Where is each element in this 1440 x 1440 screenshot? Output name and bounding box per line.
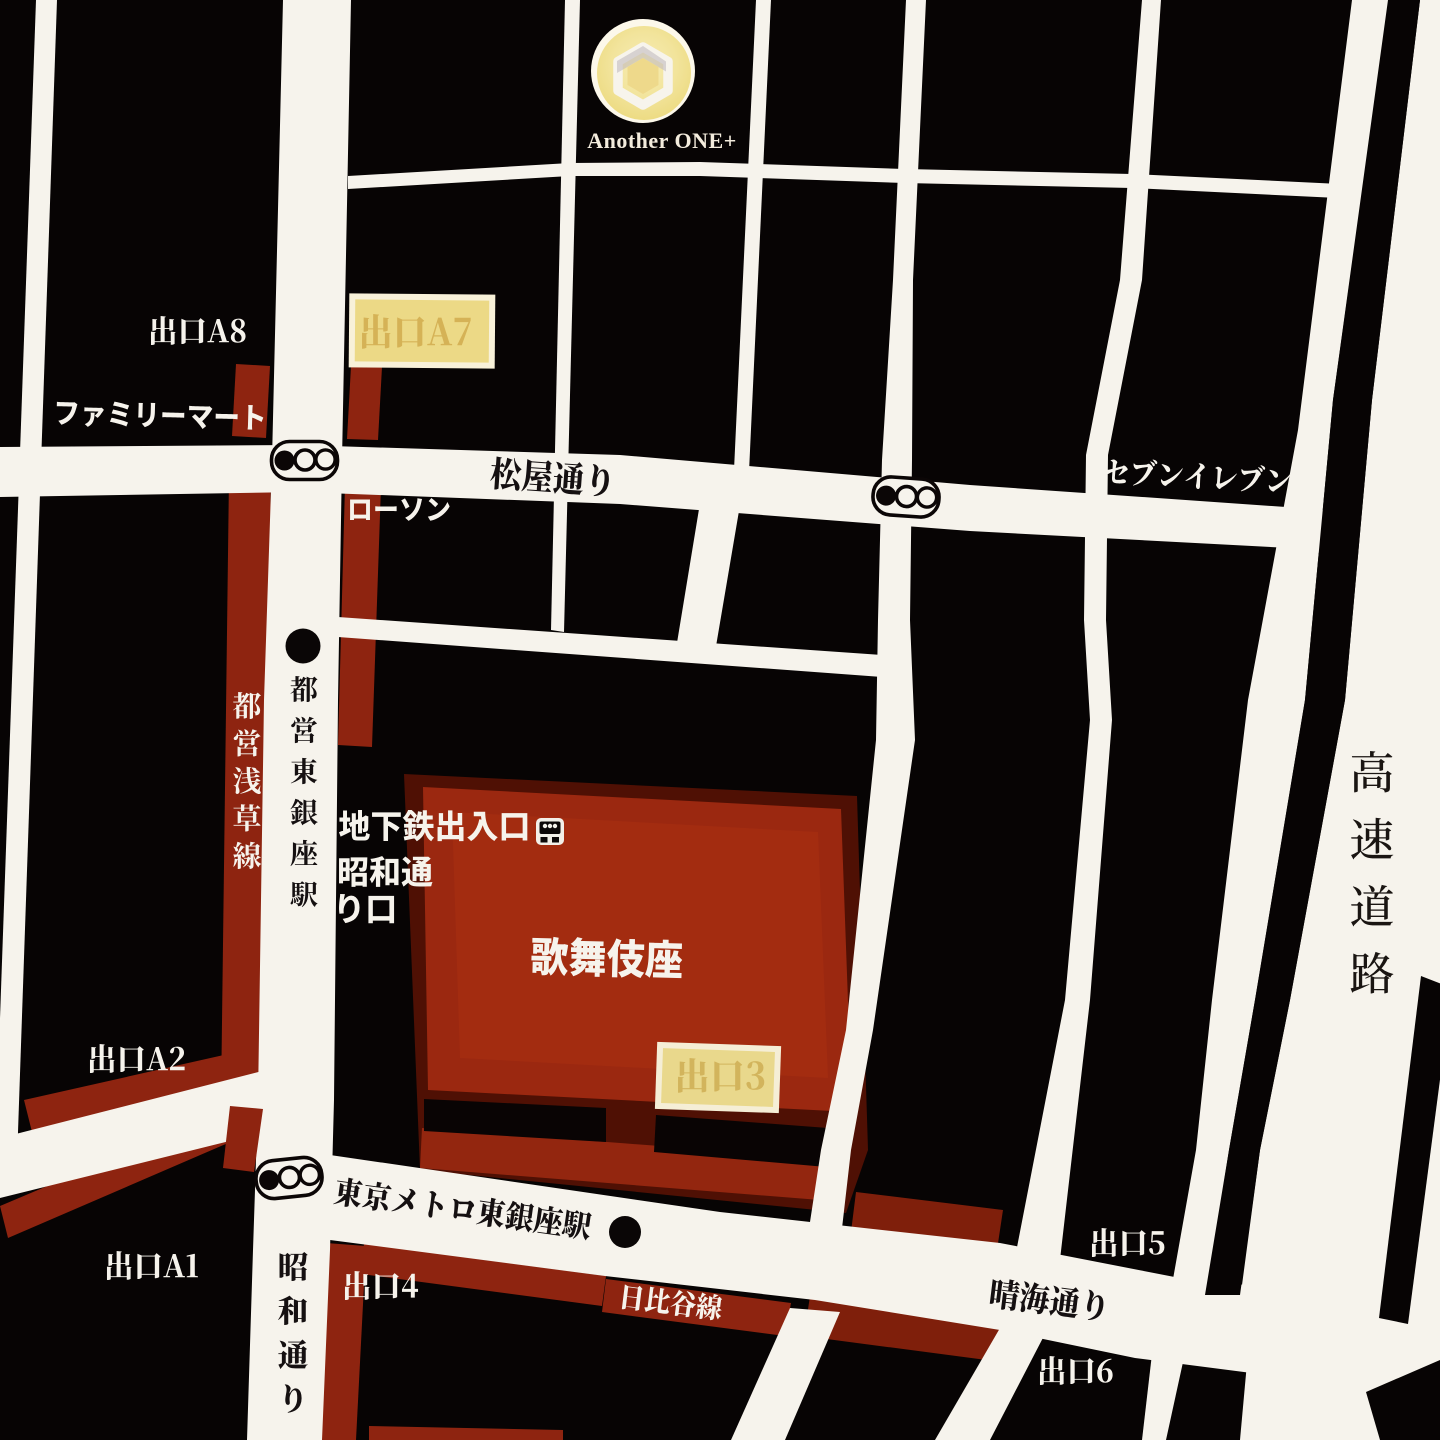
svg-text:Another ONE+: Another ONE+ xyxy=(587,128,737,153)
